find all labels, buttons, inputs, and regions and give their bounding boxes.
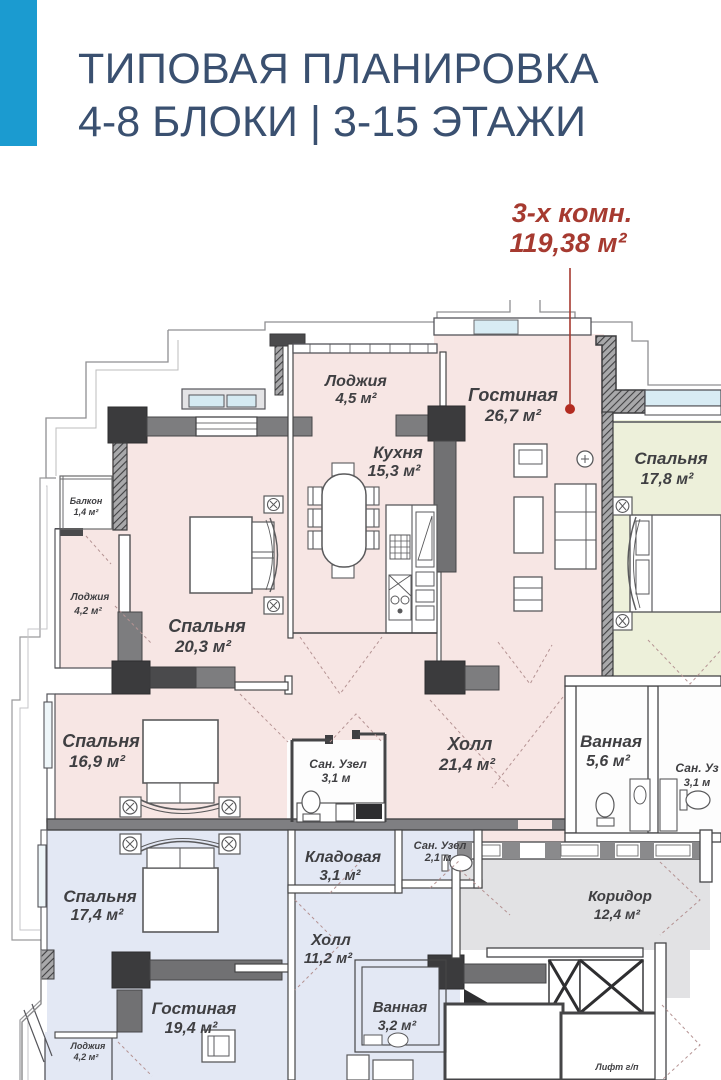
svg-text:Ванная: Ванная: [580, 732, 642, 751]
svg-text:119,38 м²: 119,38 м²: [509, 228, 627, 258]
svg-text:4,2 м²: 4,2 м²: [73, 606, 102, 617]
svg-text:12,4 м²: 12,4 м²: [594, 906, 640, 922]
svg-text:Кладовая: Кладовая: [305, 849, 382, 866]
svg-text:3,2 м²: 3,2 м²: [378, 1017, 417, 1033]
svg-text:15,3 м²: 15,3 м²: [368, 463, 421, 480]
svg-text:Лоджия: Лоджия: [70, 1041, 106, 1051]
svg-text:19,4 м²: 19,4 м²: [165, 1020, 218, 1037]
svg-text:3,1 м: 3,1 м: [684, 777, 711, 789]
svg-text:26,7 м²: 26,7 м²: [484, 406, 542, 425]
svg-text:Спальня: Спальня: [63, 887, 136, 906]
svg-text:1,4 м²: 1,4 м²: [74, 507, 100, 517]
svg-text:3,1 м²: 3,1 м²: [319, 867, 361, 884]
svg-text:17,4 м²: 17,4 м²: [71, 907, 124, 924]
svg-text:3,1 м: 3,1 м: [322, 771, 351, 785]
svg-text:3-х комн.: 3-х комн.: [512, 198, 633, 228]
svg-text:4,2 м²: 4,2 м²: [73, 1052, 100, 1062]
svg-text:2,1 м: 2,1 м: [424, 852, 452, 864]
svg-text:5,6 м²: 5,6 м²: [586, 753, 631, 770]
svg-text:Гостиная: Гостиная: [152, 999, 237, 1018]
svg-text:Спальня: Спальня: [62, 731, 140, 751]
svg-text:Гостиная: Гостиная: [468, 385, 558, 405]
svg-text:Лоджия: Лоджия: [324, 373, 387, 390]
svg-text:21,4 м²: 21,4 м²: [438, 755, 496, 774]
svg-text:16,9 м²: 16,9 м²: [69, 752, 126, 771]
svg-text:Лоджия: Лоджия: [70, 592, 110, 603]
svg-text:4,5 м²: 4,5 м²: [334, 390, 377, 407]
svg-text:ТИПОВАЯ ПЛАНИРОВКА: ТИПОВАЯ ПЛАНИРОВКА: [78, 45, 599, 93]
svg-text:Кухня: Кухня: [373, 443, 423, 462]
svg-text:Холл: Холл: [310, 932, 351, 949]
svg-text:Сан. Уз: Сан. Уз: [675, 761, 718, 775]
svg-text:11,2 м²: 11,2 м²: [304, 950, 353, 967]
svg-text:Спальня: Спальня: [168, 616, 246, 636]
svg-text:Коридор: Коридор: [588, 888, 652, 905]
svg-text:Ванная: Ванная: [373, 999, 428, 1016]
svg-text:20,3 м²: 20,3 м²: [174, 637, 232, 656]
svg-text:Спальня: Спальня: [634, 449, 707, 468]
svg-text:Сан. Узел: Сан. Узел: [309, 757, 367, 771]
svg-text:Сан. Узел: Сан. Узел: [414, 840, 467, 852]
svg-text:Балкон: Балкон: [70, 496, 103, 506]
svg-text:17,8 м²: 17,8 м²: [641, 471, 694, 488]
svg-text:Лифт г/п: Лифт г/п: [595, 1062, 639, 1072]
svg-text:4-8 БЛОКИ | 3-15 ЭТАЖИ: 4-8 БЛОКИ | 3-15 ЭТАЖИ: [78, 98, 586, 146]
svg-text:Холл: Холл: [447, 734, 493, 754]
